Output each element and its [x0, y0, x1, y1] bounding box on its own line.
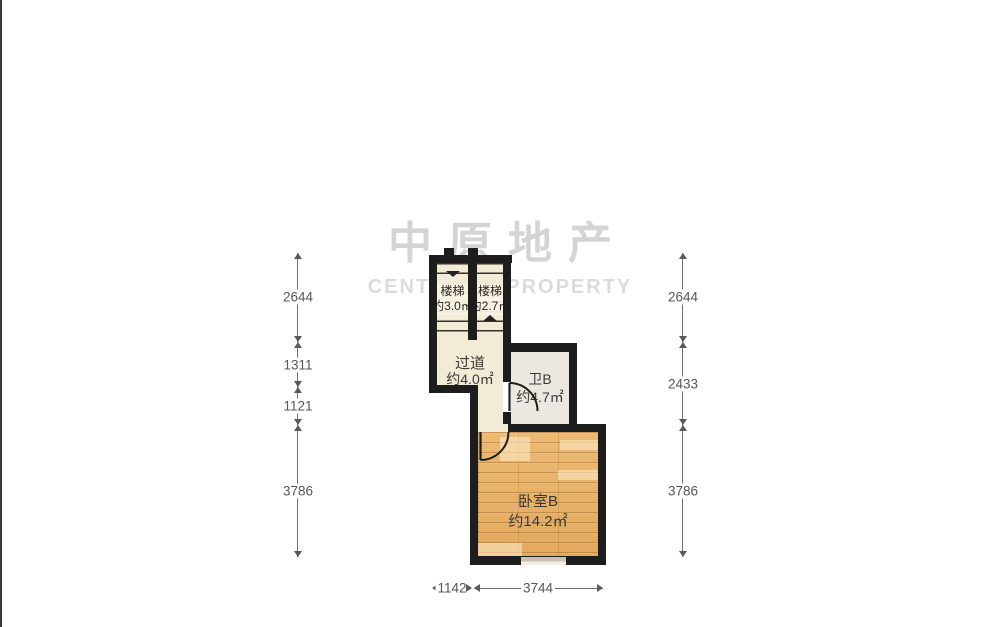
dim-arrow-icon	[294, 387, 302, 393]
dim-arrow-icon	[474, 584, 480, 592]
dim-value: 3786	[666, 484, 700, 499]
dim-arrow-icon	[679, 425, 687, 431]
dim-value: 3786	[281, 484, 315, 499]
dim-arrow-icon	[294, 342, 302, 348]
dim-value: 1311	[281, 358, 314, 373]
dimension-annotations: 2644 1311 1121 3786 2644 2433 3786 1142 …	[0, 0, 1001, 627]
dim-arrow-icon	[466, 584, 472, 592]
dim-value: 1121	[281, 399, 314, 414]
dim-value: 2644	[281, 290, 315, 305]
dim-arrow-icon	[679, 551, 687, 557]
dim-arrow-icon	[597, 584, 603, 592]
dim-arrow-icon	[679, 342, 687, 348]
dim-value: 1142	[435, 581, 468, 596]
dim-arrow-icon	[294, 253, 302, 259]
dim-value: 2433	[666, 377, 700, 392]
dim-value: 3744	[521, 581, 555, 596]
dim-arrow-icon	[294, 425, 302, 431]
dim-arrow-icon	[679, 253, 687, 259]
floor-plan-page: 中原地产 CENTALINE PROPERTY	[0, 0, 1001, 627]
dim-value: 2644	[666, 290, 700, 305]
dim-arrow-icon	[294, 551, 302, 557]
